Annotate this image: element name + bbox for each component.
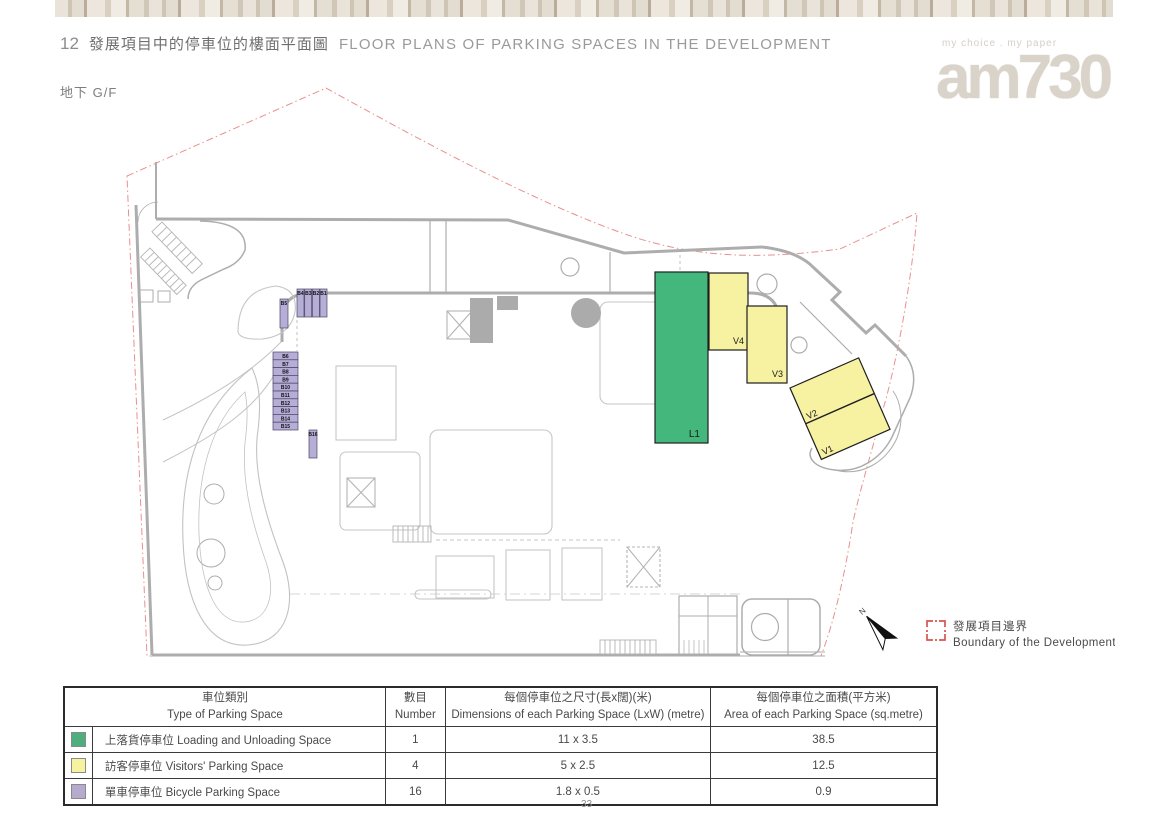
boundary-legend: 發展項目邊界 Boundary of the Development (927, 619, 1115, 649)
boundary-legend-icon (927, 621, 945, 640)
number-cell: 4 (385, 753, 445, 779)
number-cell: 1 (385, 727, 445, 753)
bicycle-space-label: B7 (282, 362, 289, 368)
bicycle-space-label: B11 (281, 393, 290, 399)
header-area: 每個停車位之面積(平方米) Area of each Parking Space… (710, 687, 937, 727)
header-number: 數目 Number (385, 687, 445, 727)
swatch-cell (64, 727, 92, 753)
solid-cores (470, 296, 601, 343)
bicycle-space-label: B1 (320, 291, 327, 297)
header-dimensions: 每個停車位之尺寸(長x闊)(米) Dimensions of each Park… (445, 687, 710, 727)
area-cell: 38.5 (710, 727, 937, 753)
table-row-visitor: 訪客停車位 Visitors' Parking Space 4 5 x 2.5 … (64, 753, 937, 779)
visitor-swatch (71, 758, 86, 773)
type-cell: 上落貨停車位 Loading and Unloading Space (92, 727, 385, 753)
bicycle-space-label: B8 (282, 370, 289, 376)
loading-space-label: L1 (689, 429, 701, 440)
bicycle-space-label: B14 (281, 416, 290, 422)
bicycle-space-label: B6 (282, 354, 289, 360)
bicycle-space-label: B15 (281, 424, 290, 430)
bicycle-space-label: B13 (281, 409, 290, 415)
visitor-spaces-v1-v2: V2 V1 (790, 358, 890, 460)
boundary-legend-zh: 發展項目邊界 (953, 619, 1028, 633)
header-type: 車位類別 Type of Parking Space (64, 687, 385, 727)
bicycle-space-label: B3 (305, 291, 312, 297)
visitor-space-label: V4 (733, 336, 744, 346)
north-label: N (857, 606, 867, 617)
floor-plan-svg: L1 V4 V3 V2 V1 B1 B2 B3 (95, 80, 1115, 680)
elevator-shafts (347, 311, 660, 587)
page-number: 33 (0, 799, 1173, 810)
decorative-header-strip (55, 0, 1113, 17)
parking-table-header: 車位類別 Type of Parking Space 數目 Number 每個停… (64, 687, 937, 727)
loading-space-l1: L1 (655, 272, 708, 443)
swatch-cell (64, 753, 92, 779)
bicycle-space-label: B9 (282, 377, 289, 383)
boundary-legend-en: Boundary of the Development (953, 637, 1115, 649)
dimensions-cell: 5 x 2.5 (445, 753, 710, 779)
bicycle-space-label: B4 (297, 291, 304, 297)
dimensions-cell: 11 x 3.5 (445, 727, 710, 753)
visitor-space-label: V3 (772, 369, 783, 379)
bicycle-space-label: B10 (281, 385, 290, 391)
floor-plan: L1 V4 V3 V2 V1 B1 B2 B3 (95, 80, 1115, 680)
bicycle-space-label: B16 (308, 432, 317, 438)
table-row-loading: 上落貨停車位 Loading and Unloading Space 1 11 … (64, 727, 937, 753)
visitor-space-v4: V4 (709, 273, 748, 350)
page-title-chinese: 發展項目中的停車位的樓面平面圖 (89, 33, 329, 54)
building-walls (136, 162, 914, 656)
visitor-space-v3: V3 (747, 306, 787, 383)
north-arrow-icon: N (853, 602, 897, 650)
page-title-english: FLOOR PLANS OF PARKING SPACES IN THE DEV… (339, 36, 832, 53)
area-cell: 12.5 (710, 753, 937, 779)
bicycle-space-label: B5 (281, 301, 288, 307)
loading-swatch (71, 732, 86, 747)
bicycle-space-label: B12 (281, 401, 290, 407)
bicycle-swatch (71, 784, 86, 799)
section-number: 12 (60, 34, 79, 54)
bicycle-spaces: B1 B2 B3 B4 B5 B6 B7 B8 B9 B10 B11 B12 B… (273, 289, 327, 458)
page-title: 12 發展項目中的停車位的樓面平面圖 FLOOR PLANS OF PARKIN… (60, 33, 832, 54)
bicycle-space-label: B2 (313, 291, 320, 297)
type-cell: 訪客停車位 Visitors' Parking Space (92, 753, 385, 779)
interior-rooms (163, 255, 740, 600)
parking-table: 車位類別 Type of Parking Space 數目 Number 每個停… (63, 686, 938, 806)
brochure-page: { "header": { "section_number": "12", "t… (0, 0, 1173, 828)
